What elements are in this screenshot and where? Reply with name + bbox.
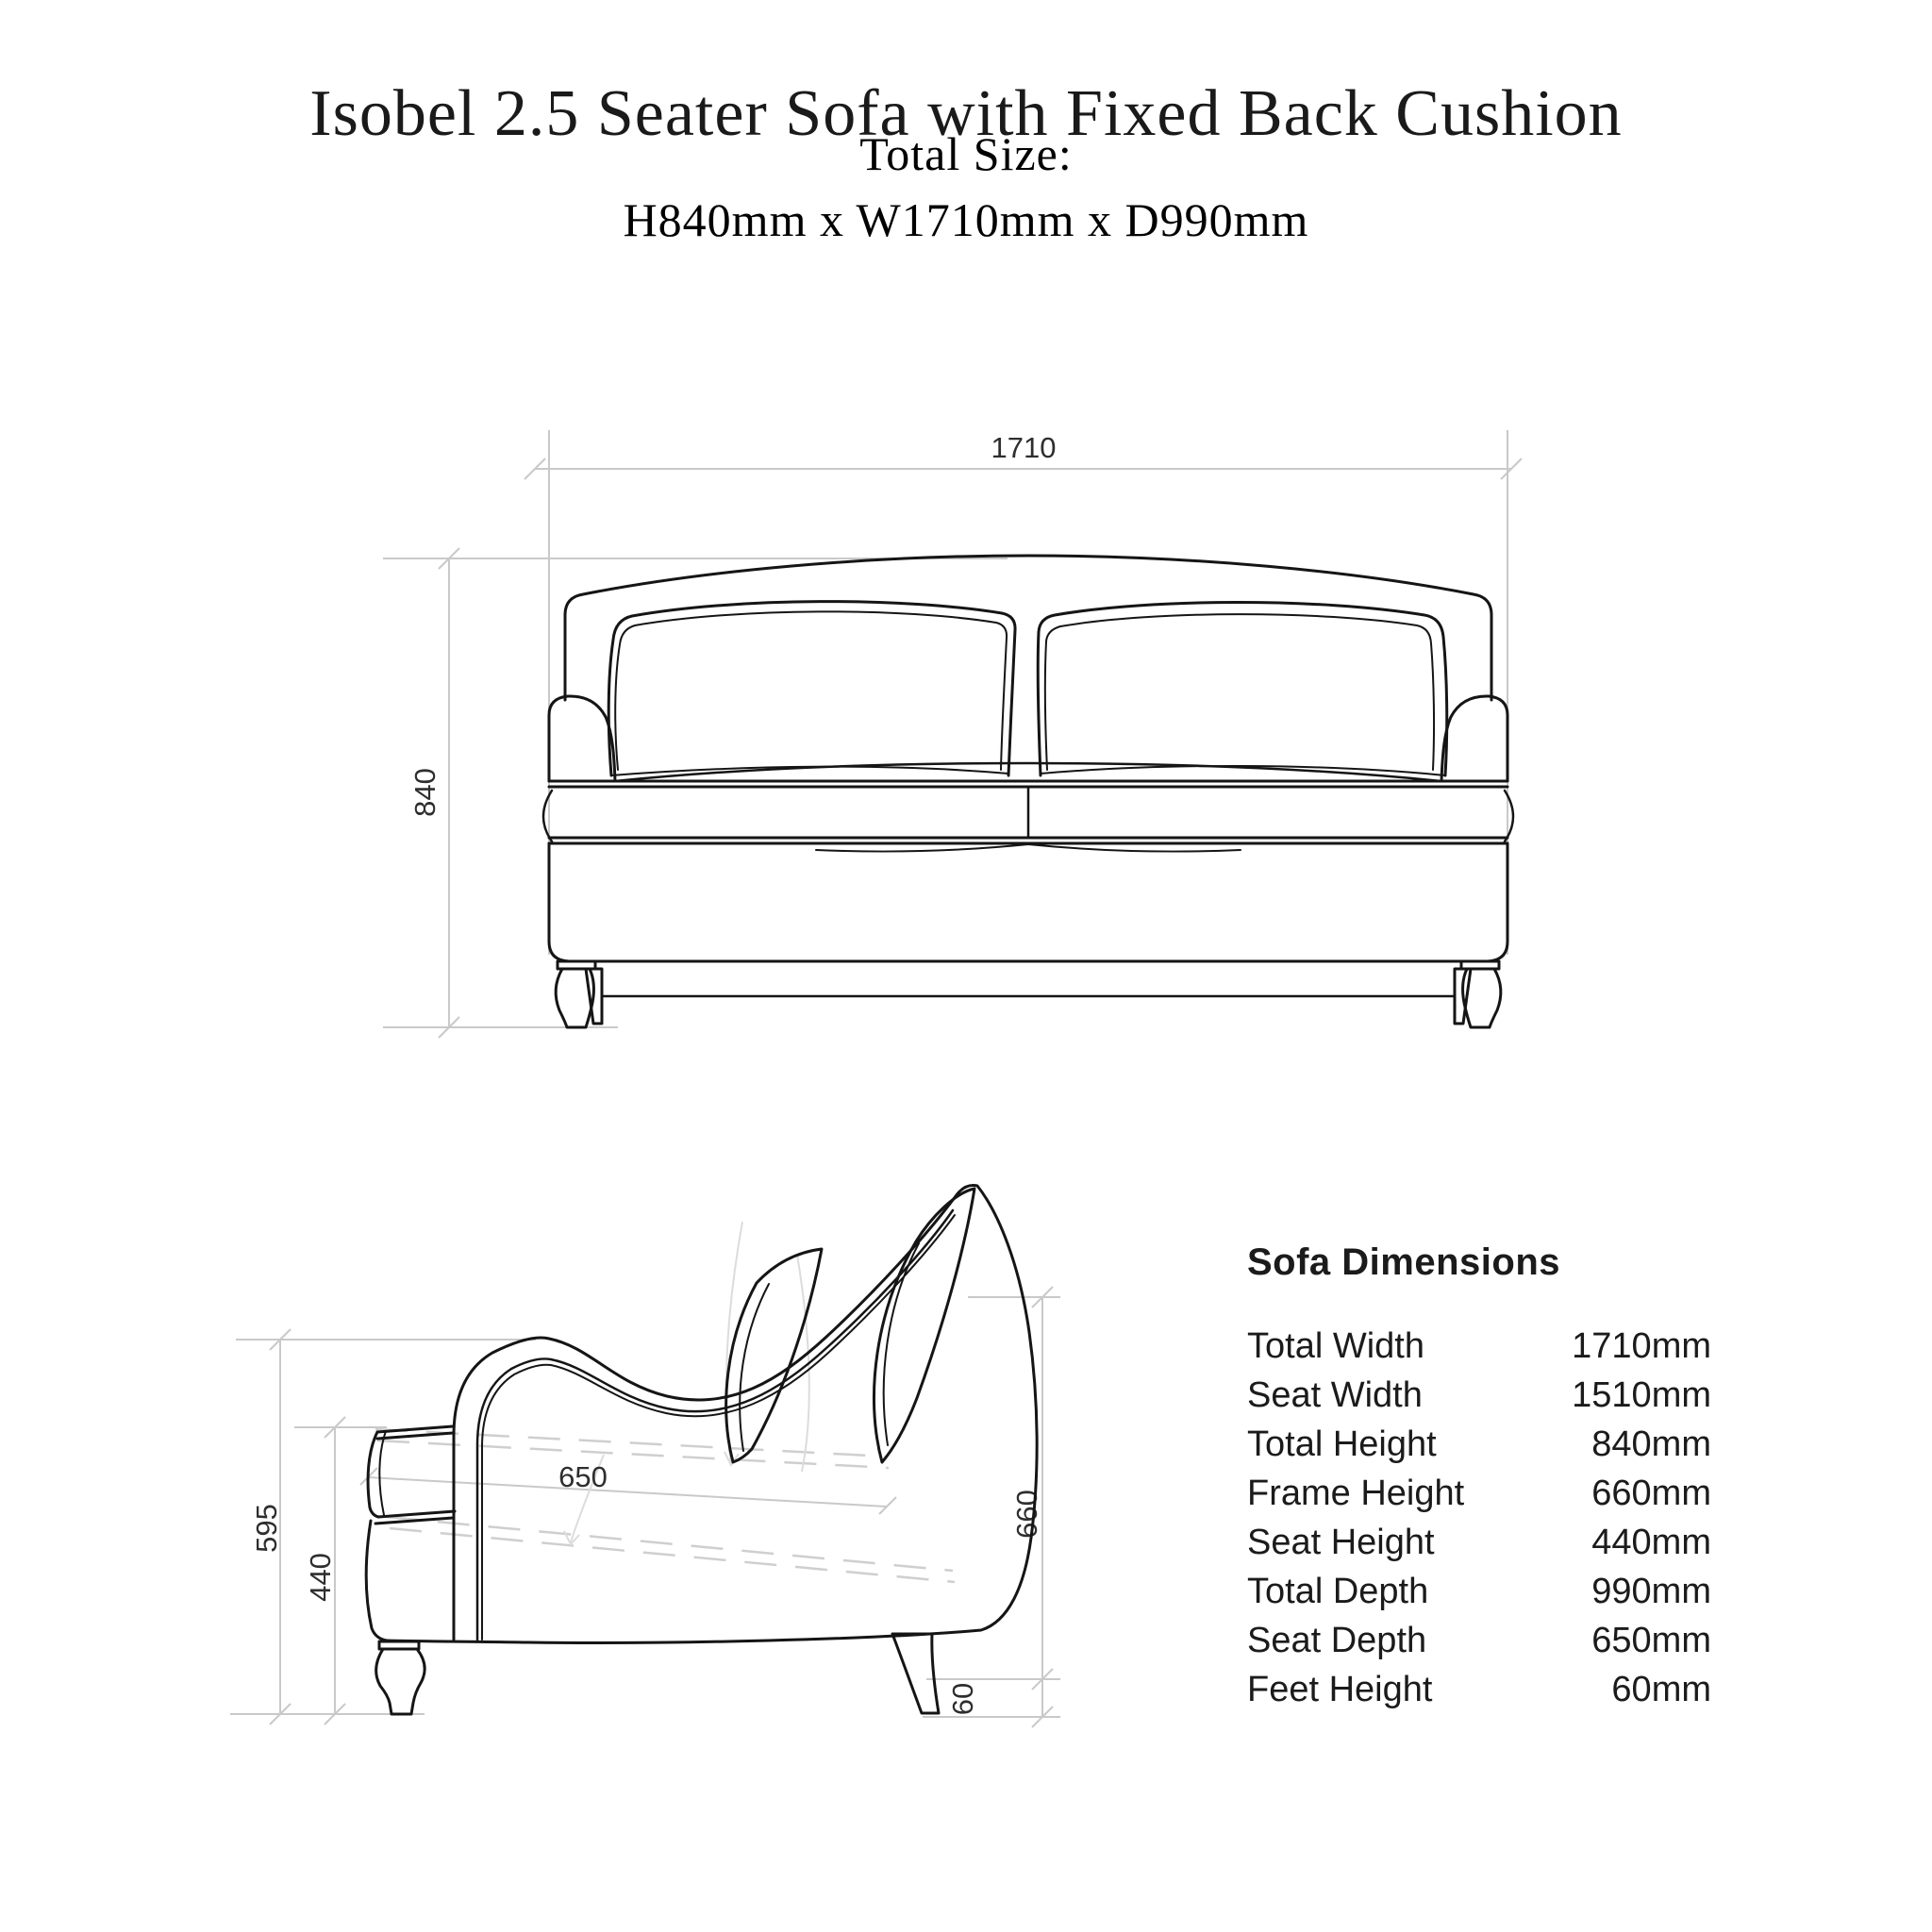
arm-front-edge [366,1521,387,1641]
dimension-value: 440mm [1591,1518,1711,1567]
side-feet-height-text: 60 [946,1683,979,1715]
back-frame [565,556,1491,700]
dimension-label: Total Depth [1247,1567,1428,1616]
seat-cushion-crown [615,763,1441,781]
table-row: Seat Height440mm [1247,1518,1711,1567]
table-row: Feet Height60mm [1247,1665,1711,1714]
dashed-line [390,1528,955,1582]
tick-marks [360,1468,896,1514]
side-elevation-drawing: 595 440 650 660 60 [217,1151,1113,1764]
dimension-label: Total Height [1247,1420,1437,1469]
dimensions-table: Sofa Dimensions Total Width1710mmSeat Wi… [1247,1241,1711,1714]
table-row: Seat Width1510mm [1247,1371,1711,1420]
dimension-label: Seat Height [1247,1518,1435,1567]
dimension-value: 60mm [1611,1665,1711,1714]
dimension-value: 650mm [1591,1616,1711,1665]
table-row: Frame Height660mm [1247,1469,1711,1518]
dimension-label: Seat Depth [1247,1616,1426,1665]
front-width-dimension-text: 1710 [991,431,1057,464]
side-dimension-lines [230,1287,1060,1727]
side-body-outline [387,1185,1037,1642]
table-row: Total Width1710mm [1247,1322,1711,1371]
dimension-label: Feet Height [1247,1665,1432,1714]
arm-piping-line [477,1210,953,1640]
table-row: Total Depth990mm [1247,1567,1711,1616]
total-size-label: Total Size: [0,130,1932,177]
left-back-cushion [608,602,1015,775]
arm-panel-top [377,1426,453,1439]
dimension-label: Total Width [1247,1322,1424,1371]
seat-depth-dimension-line [368,1477,887,1507]
front-height-dimension-text: 840 [408,768,441,817]
arm-panel-inner-curve [379,1431,386,1515]
side-overall-height-text: 595 [250,1504,283,1553]
side-seat-height-text: 440 [304,1553,337,1602]
dimension-value: 990mm [1591,1567,1711,1616]
table-row: Seat Depth650mm [1247,1616,1711,1665]
dashed-line [387,1517,953,1571]
dimensions-table-heading: Sofa Dimensions [1247,1241,1711,1284]
dimension-value: 1710mm [1572,1322,1711,1371]
seat-underline-sag [816,844,1241,852]
side-back-leg [892,1634,939,1713]
dimension-value: 1510mm [1572,1371,1711,1420]
right-arm [1441,696,1507,781]
front-dimension-lines [383,430,1522,1038]
total-size-value: H840mm x W1710mm x D990mm [0,196,1932,243]
dimensions-table-rows: Total Width1710mmSeat Width1510mmTotal H… [1247,1322,1711,1714]
spec-sheet-page: { "header": { "title": "Isobel 2.5 Seate… [0,0,1932,1932]
side-seat-depth-text: 650 [558,1460,608,1493]
dimension-label: Seat Width [1247,1371,1423,1420]
left-back-cushion-piping [615,611,1007,770]
side-frame-height-text: 660 [1010,1490,1043,1539]
right-back-cushion-piping [1045,614,1434,770]
side-front-leg [376,1649,425,1714]
base-frame [549,843,1507,961]
dimension-value: 840mm [1591,1420,1711,1469]
side-sofa-outline [366,1185,1037,1714]
left-arm [549,696,615,781]
dimension-label: Frame Height [1247,1469,1464,1518]
front-elevation-drawing: 1710 840 [377,415,1604,1075]
right-back-cushion [1038,603,1447,776]
dimension-value: 660mm [1591,1469,1711,1518]
table-row: Total Height840mm [1247,1420,1711,1469]
front-sofa-outline [543,556,1513,1027]
back-cushion-leaf [874,1189,974,1462]
